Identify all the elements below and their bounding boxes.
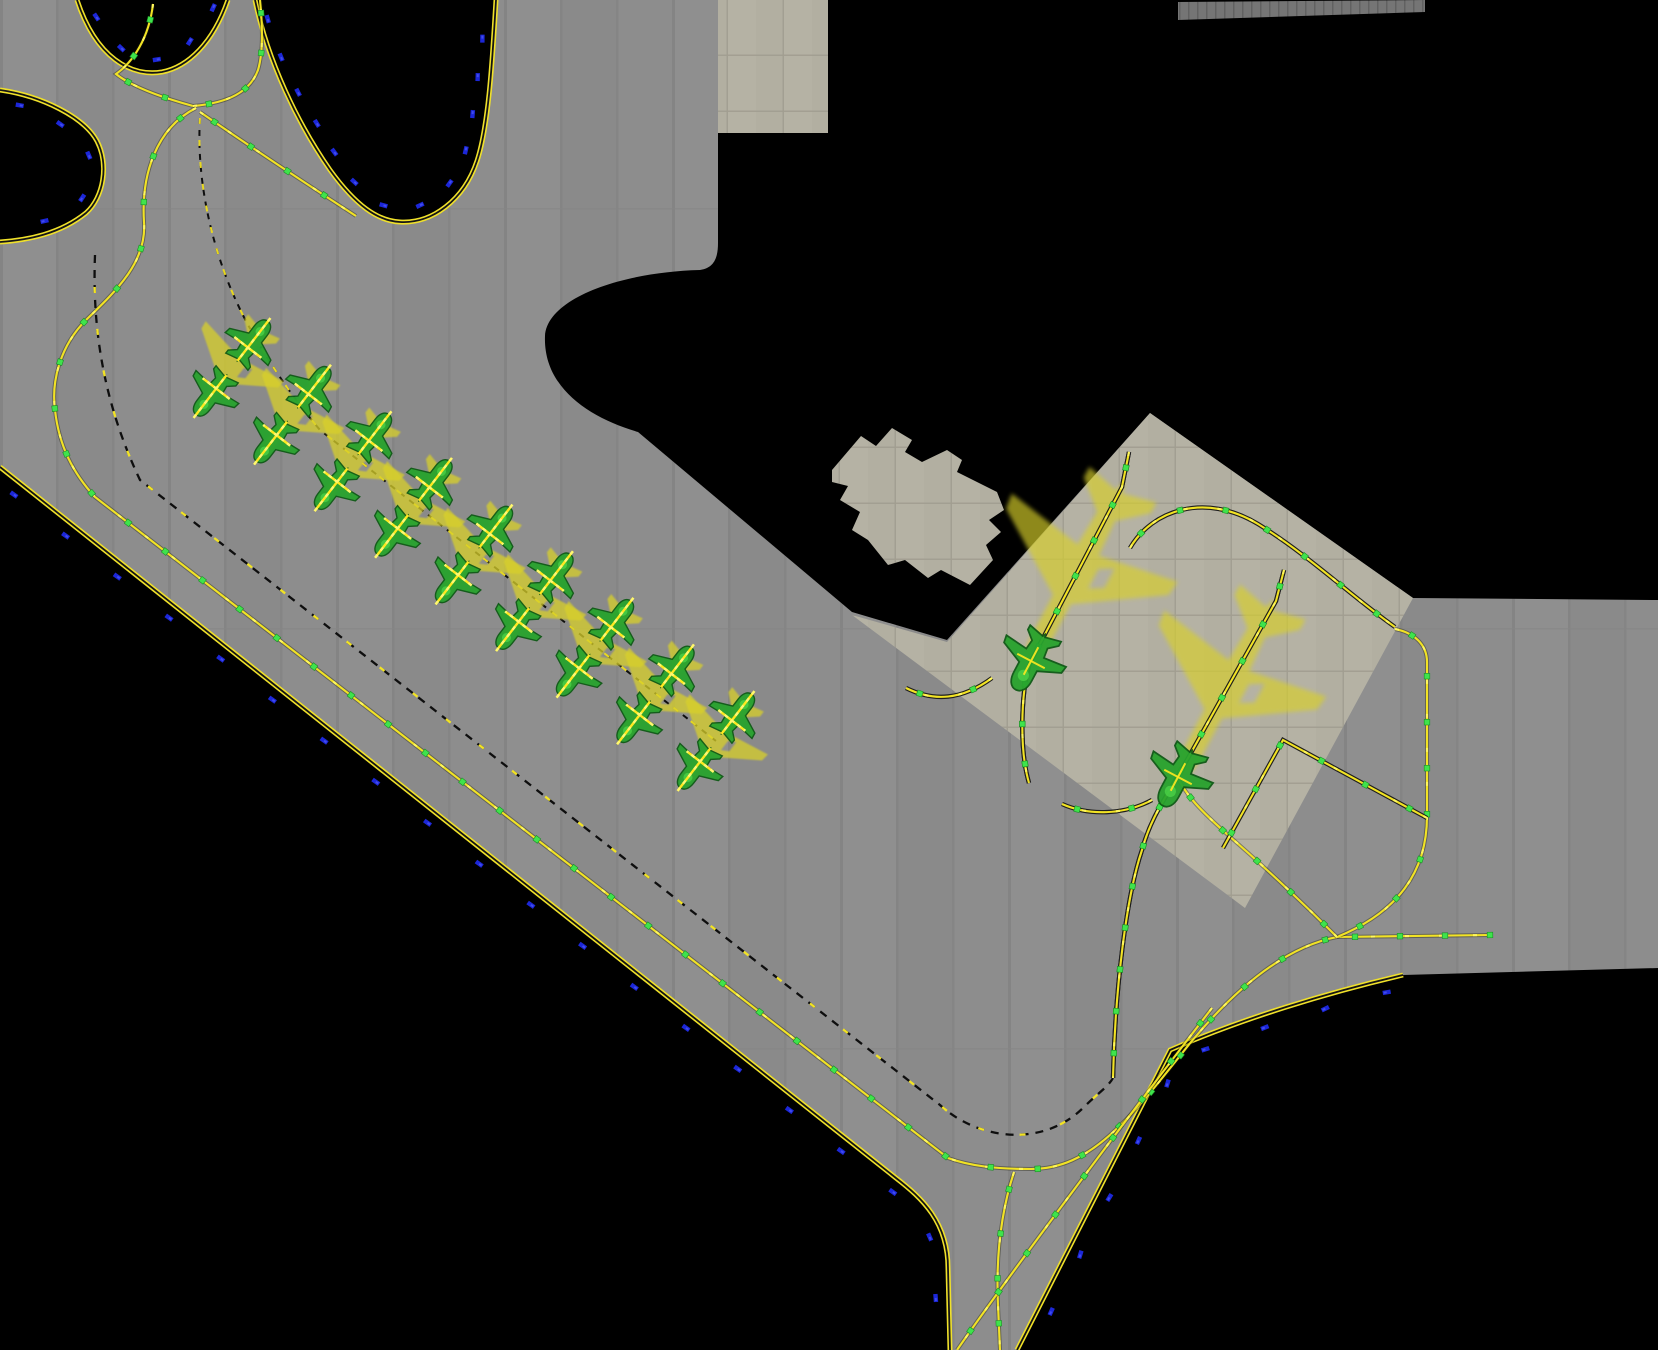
blue-edge-light (1077, 1250, 1084, 1259)
blue-edge-light (1164, 1079, 1171, 1088)
blue-edge-light (475, 73, 480, 81)
blue-edge-light (423, 819, 432, 827)
centerline-light (996, 1320, 1002, 1326)
ground-radar-canvas[interactable] (0, 0, 1658, 1350)
pavement-layer (0, 0, 1658, 1350)
blue-edge-light (320, 737, 329, 745)
blue-edge-light (268, 696, 277, 704)
centerline-light (1074, 806, 1081, 813)
airport-ground-view (0, 0, 1658, 1350)
blue-edge-light (733, 1065, 742, 1073)
centerline-light (1113, 1008, 1119, 1014)
blue-edge-light (1382, 989, 1391, 995)
centerline-light (997, 1230, 1003, 1236)
centerline-light (1129, 883, 1136, 890)
centerline-light (52, 405, 58, 411)
centerline-light (206, 101, 213, 108)
centerline-light (1128, 805, 1135, 812)
centerline-light (1019, 721, 1025, 727)
blue-edge-light (681, 1024, 690, 1032)
centerline-light (258, 50, 264, 56)
blue-edge-light (61, 531, 70, 539)
blue-edge-light (1105, 1193, 1113, 1202)
blue-edge-light (1048, 1307, 1055, 1316)
centerline-light (1222, 507, 1229, 514)
centerline-light (1022, 761, 1028, 767)
centerline-light (1122, 925, 1128, 931)
blue-edge-light (888, 1188, 897, 1196)
centerline-light (1424, 719, 1430, 725)
blue-edge-light (216, 655, 225, 663)
blue-edge-light (785, 1106, 794, 1114)
blue-edge-light (475, 860, 484, 868)
blue-edge-light (630, 983, 639, 991)
centerline-light (147, 16, 154, 23)
blue-edge-light (1201, 1046, 1210, 1053)
blue-edge-light (9, 490, 18, 498)
blue-edge-light (164, 614, 173, 622)
centerline-light (1035, 1166, 1041, 1172)
centerline-light (1006, 1186, 1013, 1193)
centerline-light (1322, 936, 1329, 943)
blue-edge-light (470, 110, 475, 118)
centerline-light (1177, 507, 1184, 514)
centerline-light (1397, 933, 1403, 939)
centerline-light (1140, 842, 1147, 849)
centerline-light (1111, 1050, 1117, 1056)
blue-edge-light (926, 1232, 933, 1241)
centerline-light (1276, 583, 1283, 590)
blue-edge-light (933, 1294, 938, 1302)
centerline-light (1352, 934, 1358, 940)
centerline-light (1117, 966, 1123, 972)
blue-edge-light (1321, 1005, 1330, 1012)
blue-edge-light (837, 1147, 846, 1155)
blue-edge-light (1135, 1136, 1142, 1145)
centerline-light (141, 199, 147, 205)
blue-edge-light (480, 35, 484, 43)
terminal-pad (718, 0, 828, 133)
centerline-light (988, 1164, 994, 1170)
blue-edge-light (113, 572, 122, 580)
centerline-light (1442, 933, 1448, 939)
blue-edge-light (371, 778, 380, 786)
centerline-light (995, 1275, 1001, 1281)
centerline-light (916, 690, 923, 697)
blue-edge-light (1260, 1024, 1269, 1031)
blue-edge-light (578, 942, 587, 950)
centerline-light (258, 10, 264, 16)
blue-edge-light (526, 901, 535, 909)
centerline-light (1123, 464, 1130, 471)
centerline-light (1424, 673, 1430, 679)
centerline-light (1424, 765, 1430, 771)
centerline-light (1487, 932, 1493, 938)
